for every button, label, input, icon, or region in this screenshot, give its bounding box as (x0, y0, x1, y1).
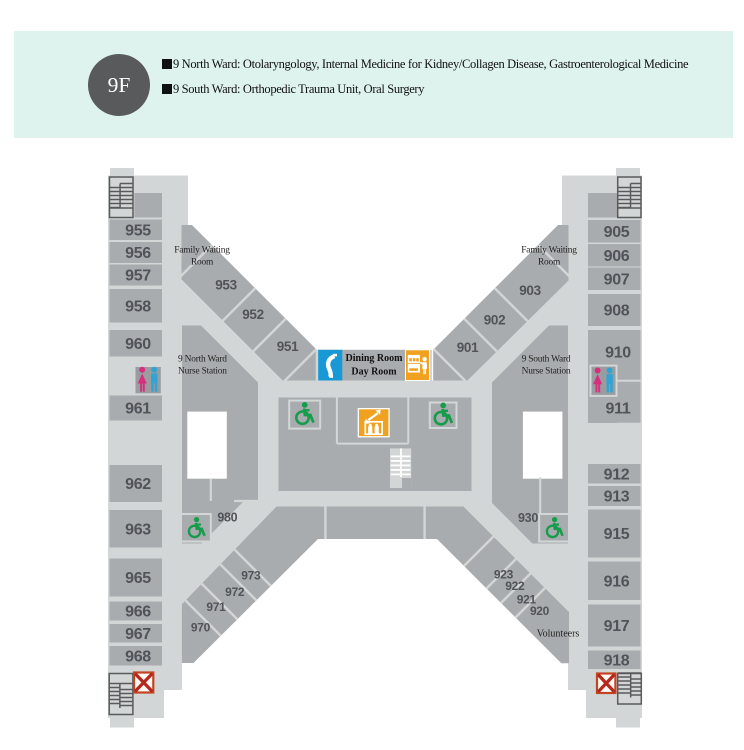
svg-text:958: 958 (125, 298, 151, 315)
svg-text:910: 910 (605, 345, 631, 362)
svg-text:957: 957 (125, 268, 151, 285)
svg-text:Volunteers: Volunteers (537, 629, 580, 640)
svg-text:Day Room: Day Room (351, 367, 397, 378)
svg-text:920: 920 (530, 604, 550, 618)
svg-text:970: 970 (191, 620, 211, 634)
svg-text:922: 922 (505, 579, 525, 593)
svg-text:961: 961 (125, 401, 151, 418)
svg-text:908: 908 (604, 303, 630, 320)
svg-text:912: 912 (604, 466, 630, 483)
svg-text:916: 916 (604, 573, 630, 590)
svg-text:901: 901 (457, 340, 479, 355)
svg-text:902: 902 (484, 313, 506, 328)
svg-text:960: 960 (125, 336, 151, 353)
svg-text:906: 906 (604, 248, 630, 265)
svg-text:966: 966 (125, 604, 151, 621)
svg-text:965: 965 (125, 570, 151, 587)
svg-text:955: 955 (125, 222, 151, 239)
svg-text:915: 915 (604, 526, 630, 543)
svg-text:9 South Ward: 9 South Ward (522, 355, 571, 365)
svg-text:973: 973 (241, 569, 261, 583)
svg-text:Room: Room (191, 258, 214, 268)
svg-text:956: 956 (125, 245, 151, 262)
svg-text:951: 951 (277, 339, 299, 354)
svg-text:Family Waiting: Family Waiting (174, 246, 230, 256)
svg-text:952: 952 (242, 307, 264, 322)
svg-text:907: 907 (604, 271, 630, 288)
svg-text:Family Waiting: Family Waiting (521, 246, 577, 256)
svg-text:918: 918 (604, 652, 630, 669)
svg-text:930: 930 (518, 511, 538, 525)
svg-text:Nurse Station: Nurse Station (178, 367, 227, 377)
svg-text:968: 968 (125, 648, 151, 665)
svg-text:963: 963 (125, 521, 151, 538)
svg-text:972: 972 (225, 585, 245, 599)
svg-text:903: 903 (519, 283, 541, 298)
svg-text:967: 967 (125, 626, 151, 643)
svg-text:980: 980 (217, 511, 237, 525)
svg-text:913: 913 (604, 489, 630, 506)
svg-text:905: 905 (604, 224, 630, 241)
svg-text:Nurse Station: Nurse Station (522, 367, 571, 377)
svg-text:Room: Room (538, 258, 561, 268)
svg-text:962: 962 (125, 476, 151, 493)
svg-text:9 North Ward: 9 North Ward (178, 355, 227, 365)
svg-text:911: 911 (606, 401, 631, 418)
svg-text:953: 953 (215, 278, 237, 293)
svg-text:917: 917 (604, 618, 630, 635)
svg-text:971: 971 (206, 600, 226, 614)
svg-text:Dining Room: Dining Room (346, 353, 404, 364)
